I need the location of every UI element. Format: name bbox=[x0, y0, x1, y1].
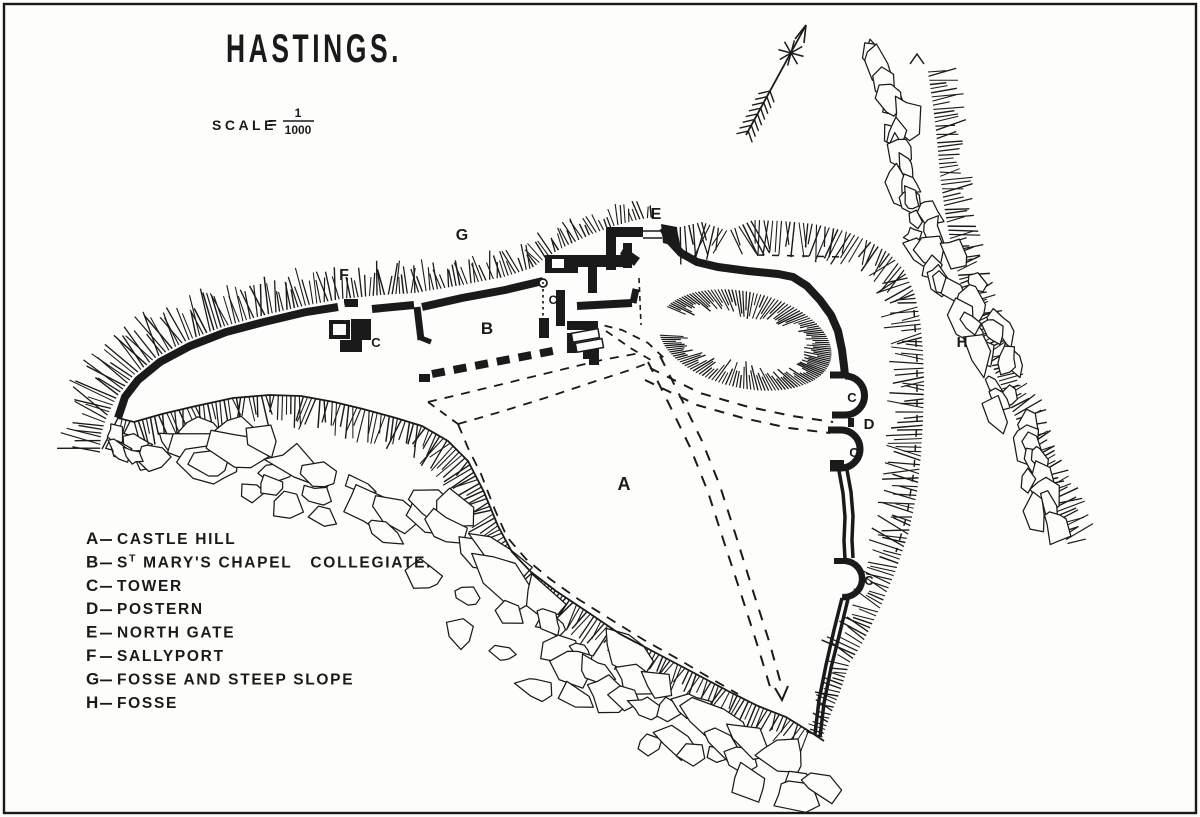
map-label-E: E bbox=[651, 206, 662, 223]
legend-label: ST MARY'S CHAPEL COLLEGIATE. bbox=[117, 552, 432, 571]
map-label-B: B bbox=[481, 319, 493, 338]
legend-letter: G bbox=[86, 669, 100, 688]
legend-letter: C bbox=[86, 576, 99, 595]
legend-label: SALLYPORT bbox=[117, 648, 225, 665]
map-label-C: C bbox=[847, 390, 857, 405]
map-label-F: F bbox=[339, 267, 349, 284]
legend-letter: D bbox=[86, 599, 99, 618]
map-canvas: HASTINGS. SCALE = 1 1000 ACASTLE HILLBST… bbox=[0, 0, 1200, 817]
legend-item-G: GFOSSE AND STEEP SLOPE bbox=[86, 669, 354, 688]
scale-numerator: 1 bbox=[295, 106, 302, 120]
map-label-H: H bbox=[957, 334, 968, 351]
legend-label: FOSSE bbox=[117, 695, 178, 712]
legend-label: NORTH GATE bbox=[117, 625, 235, 642]
legend-letter: H bbox=[86, 693, 99, 712]
map-title: HASTINGS. bbox=[226, 27, 402, 72]
scale-denominator: 1000 bbox=[285, 123, 312, 137]
map-label-G: G bbox=[456, 227, 468, 244]
legend-letter: B bbox=[86, 552, 99, 571]
map-label-C: C bbox=[864, 573, 874, 588]
legend-letter: F bbox=[86, 646, 97, 665]
legend-label: TOWER bbox=[117, 578, 183, 595]
legend-label: CASTLE HILL bbox=[117, 531, 236, 548]
map-label-C: C bbox=[849, 445, 859, 460]
legend-item-B: BST MARY'S CHAPEL COLLEGIATE. bbox=[86, 552, 432, 571]
legend-letter: E bbox=[86, 623, 98, 642]
map-label-C: C bbox=[549, 293, 558, 307]
map-label-C: C bbox=[371, 335, 381, 350]
legend-letter: A bbox=[86, 529, 99, 548]
hastings-castle-plan: HASTINGS. SCALE = 1 1000 ACASTLE HILLBST… bbox=[0, 0, 1200, 817]
legend-label: POSTERN bbox=[117, 601, 204, 618]
map-label-D: D bbox=[864, 416, 875, 433]
legend-label: FOSSE AND STEEP SLOPE bbox=[117, 671, 354, 688]
scale-equals: = bbox=[268, 115, 277, 132]
map-label-A: A bbox=[618, 474, 631, 494]
